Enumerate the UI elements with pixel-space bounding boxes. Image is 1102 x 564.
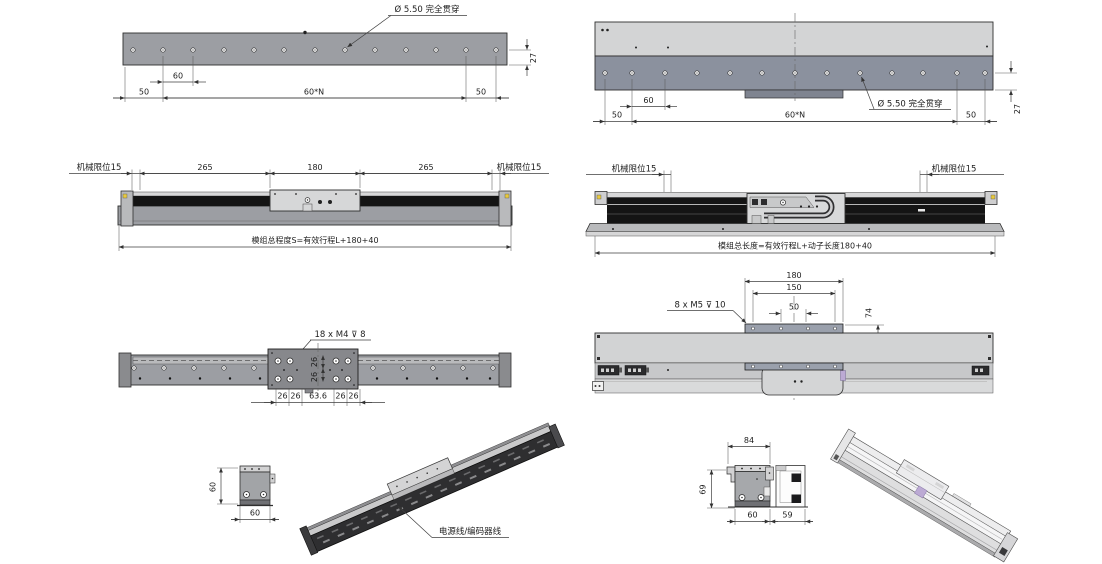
view-end-left: 60 60 (209, 466, 280, 523)
svg-text:63.6: 63.6 (309, 392, 327, 401)
svg-text:265: 265 (197, 163, 212, 172)
end-cap-right (499, 353, 511, 387)
iso-module (831, 427, 1023, 563)
svg-text:26: 26 (348, 392, 358, 401)
hole-callout: Ø 5.50 完全贯穿 (394, 4, 459, 15)
iso-module (297, 413, 564, 555)
cross-section (237, 466, 275, 506)
dim-width: 60 (231, 506, 279, 523)
dim-row-bottom: 26 26 63.6 26 26 (251, 389, 385, 406)
svg-text:27: 27 (529, 53, 538, 63)
svg-text:50: 50 (612, 111, 622, 120)
svg-text:26: 26 (310, 357, 319, 367)
technical-drawing-canvas: Ø 5.50 完全贯穿 60 50 60*N 50 27 (0, 0, 1102, 564)
svg-text:60: 60 (209, 482, 218, 492)
svg-text:60*N: 60*N (785, 111, 805, 120)
svg-text:84: 84 (744, 436, 754, 445)
limit-label-left: 机械限位15 (612, 164, 657, 175)
carriage (270, 190, 360, 211)
dim-row-top: 机械限位15 265 180 265 机械限位15 (69, 162, 549, 190)
limit-switch-left (597, 195, 601, 199)
cross-section (727, 466, 808, 508)
limit-switch-right (991, 195, 995, 199)
svg-text:26: 26 (335, 392, 345, 401)
svg-text:180: 180 (786, 271, 801, 280)
mount-plate-bottom (745, 363, 843, 370)
svg-text:59: 59 (782, 511, 792, 520)
cable-callout: 电源线/编码器线 (439, 526, 502, 537)
tap-callout: 8 x M5 ⊽ 10 (674, 301, 725, 311)
limit-label-right: 机械限位15 (932, 164, 977, 175)
view-iso-left: 电源线/编码器线 (297, 413, 564, 555)
dim-row-bottom: 60 59 (727, 509, 813, 525)
svg-text:69: 69 (699, 484, 708, 494)
technical-drawing-page: Ø 5.50 完全贯穿 60 50 60*N 50 27 (0, 0, 1102, 564)
dim-height-69: 69 (699, 470, 736, 508)
carriage-plate (268, 349, 358, 393)
module-body (595, 333, 993, 363)
svg-text:60: 60 (747, 511, 757, 520)
total-length-note: 模组总长度=有效行程L+动子长度180+40 (718, 241, 872, 251)
svg-text:60: 60 (173, 72, 183, 81)
view-side-left: 机械限位15 265 180 265 机械限位15 模组总程度S=有效行程L+1… (69, 162, 549, 251)
svg-text:26: 26 (310, 372, 319, 382)
cable-callout-leader (398, 506, 432, 538)
base-plate (586, 232, 1004, 237)
svg-text:50: 50 (789, 303, 799, 312)
end-cap-left (119, 353, 131, 387)
limit-switch-left (123, 194, 127, 198)
view-side-right: 机械限位15 机械限位15 模组总长度=有效行程L+动子长度1 (586, 164, 1004, 258)
dim-height-27: 27 (509, 39, 538, 76)
cable-tray-section (776, 466, 805, 508)
dim-height: 60 (209, 468, 239, 504)
scale-mark (918, 209, 925, 212)
tap-callout: 18 x M4 ⊽ 8 (314, 330, 365, 340)
svg-text:26: 26 (290, 392, 300, 401)
rail-strip-right (358, 357, 499, 364)
base-flange (586, 224, 1004, 232)
dim-total-length: 模组总程度S=有效行程L+180+40 (119, 226, 511, 251)
carriage-tab (745, 90, 843, 98)
module-top-band (595, 22, 993, 56)
svg-text:60: 60 (643, 96, 653, 105)
center-mark (303, 31, 306, 34)
connector-purple (841, 371, 846, 381)
hole-callout: Ø 5.50 完全贯穿 (877, 99, 942, 110)
mount-plate-top (745, 324, 843, 333)
svg-text:265: 265 (418, 163, 433, 172)
svg-text:150: 150 (786, 283, 801, 292)
svg-text:27: 27 (1013, 104, 1022, 114)
carriage-with-cable-loop (747, 194, 845, 224)
view-end-right: 84 69 (699, 436, 814, 525)
dim-row-top: 机械限位15 机械限位15 (586, 164, 1004, 193)
connector-block-right (972, 366, 989, 375)
svg-text:50: 50 (476, 88, 486, 97)
dim-height-27: 27 (995, 61, 1022, 114)
view-bottom-left: 18 x M4 ⊽ 8 (119, 330, 511, 406)
connector-block-1 (598, 366, 622, 376)
view-iso-right (831, 427, 1023, 563)
svg-text:60*N: 60*N (304, 88, 324, 97)
view-plan-right: Ø 5.50 完全贯穿 60 50 60*N 50 27 (593, 13, 1022, 125)
svg-text:60: 60 (250, 509, 260, 518)
limit-label-left: 机械限位15 (77, 162, 122, 173)
limit-switch-right (505, 194, 509, 198)
svg-text:74: 74 (865, 308, 874, 318)
svg-text:180: 180 (307, 163, 322, 172)
tap-callout-leader (733, 311, 746, 324)
svg-text:26: 26 (277, 392, 287, 401)
svg-text:50: 50 (966, 111, 976, 120)
svg-text:50: 50 (139, 88, 149, 97)
limit-label-right: 机械限位15 (497, 162, 542, 173)
view-plan-left: Ø 5.50 完全贯穿 60 50 60*N 50 27 (113, 4, 538, 102)
connector-small-left (593, 382, 604, 391)
connector-block-2 (625, 366, 649, 376)
total-length-note: 模组总程度S=有效行程L+180+40 (251, 235, 378, 245)
bracket-left (727, 467, 735, 482)
view-top-right: 180 150 50 74 8 x M5 ⊽ 10 (593, 271, 994, 400)
dim-total-length: 模组总长度=有效行程L+动子长度180+40 (595, 236, 995, 257)
dim-pitch-50: 50 (769, 303, 818, 323)
dim-top-84: 84 (728, 436, 770, 464)
